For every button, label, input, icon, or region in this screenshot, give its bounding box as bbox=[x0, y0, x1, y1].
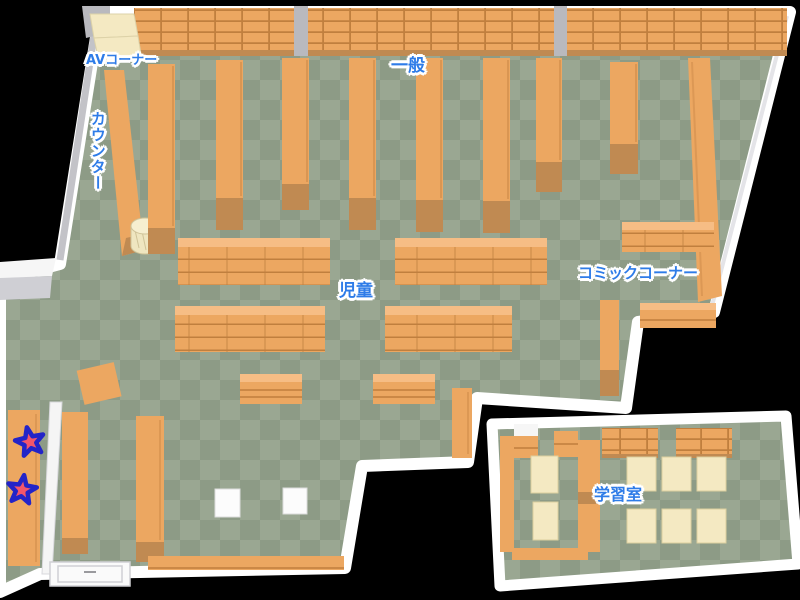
bottom-wall-shelf bbox=[148, 556, 344, 570]
desk bbox=[533, 502, 558, 540]
wall-pillar bbox=[294, 6, 308, 56]
kids-shelf bbox=[385, 306, 512, 352]
bookshelf-row bbox=[483, 58, 510, 233]
bookshelf-row bbox=[216, 60, 243, 230]
bottom-wall-shelf bbox=[512, 548, 588, 560]
bookshelf-row bbox=[136, 416, 164, 562]
white-box bbox=[215, 489, 240, 517]
extension-wall-front bbox=[0, 276, 52, 300]
white-box bbox=[283, 488, 307, 514]
study-room bbox=[492, 416, 798, 586]
kids-shelf bbox=[175, 306, 325, 352]
wall-shelf bbox=[602, 428, 658, 458]
wall-pillar bbox=[554, 6, 567, 56]
bookshelf-row bbox=[610, 62, 638, 174]
wall-shelf bbox=[134, 8, 294, 56]
desk bbox=[662, 509, 691, 543]
entrance-door bbox=[50, 562, 130, 586]
extension-wall-top bbox=[0, 258, 56, 278]
bookshelf-row bbox=[600, 300, 619, 396]
wall-shelf bbox=[567, 8, 787, 56]
label-general: 一般 bbox=[391, 58, 425, 76]
bookshelf-row bbox=[416, 58, 443, 232]
label-study-room: 学習室 bbox=[594, 487, 642, 504]
bookshelf-row bbox=[500, 440, 514, 552]
label-counter: カウンター bbox=[89, 111, 105, 191]
label-av-corner: AVコーナー bbox=[86, 54, 157, 68]
wall-shelf bbox=[554, 431, 578, 457]
bookshelf-row bbox=[536, 58, 562, 192]
kids-shelf bbox=[178, 238, 330, 285]
bookshelf-row bbox=[349, 58, 376, 230]
kids-shelf bbox=[395, 238, 547, 285]
bench bbox=[373, 374, 435, 404]
comic-step-shelf bbox=[640, 303, 716, 328]
bookshelf-row bbox=[148, 64, 175, 254]
wall-shelf bbox=[676, 428, 732, 458]
bookshelf-row bbox=[452, 388, 472, 458]
desk bbox=[531, 456, 558, 493]
wall-shelf bbox=[308, 8, 554, 56]
top-wall-shelves bbox=[134, 6, 787, 56]
av-desk bbox=[90, 14, 138, 38]
floor-map-canvas bbox=[0, 0, 800, 600]
comic-shelf bbox=[622, 222, 714, 252]
bookshelf-row bbox=[62, 412, 88, 554]
desk bbox=[697, 509, 726, 543]
bench bbox=[240, 374, 302, 404]
library-floor-map: AVコーナー カウンター 一般 児童 コミックコーナー 学習室 bbox=[0, 0, 800, 600]
desk bbox=[627, 509, 656, 543]
bookshelf-row bbox=[282, 58, 309, 210]
desk bbox=[697, 457, 726, 491]
label-comic-corner: コミックコーナー bbox=[578, 266, 698, 282]
label-children: 児童 bbox=[339, 283, 373, 301]
desk bbox=[662, 457, 691, 491]
